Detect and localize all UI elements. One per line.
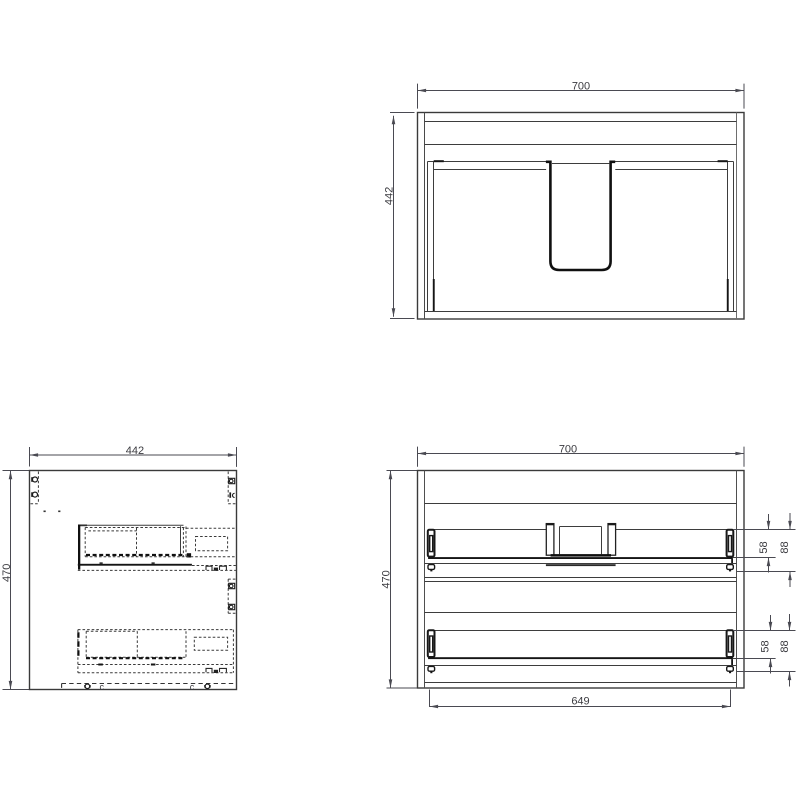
svg-text:649: 649 — [571, 696, 589, 708]
svg-text:c: c — [190, 682, 195, 692]
svg-text:442: 442 — [126, 445, 144, 457]
svg-text:700: 700 — [559, 443, 577, 455]
svg-text:58: 58 — [758, 541, 770, 553]
svg-text:470: 470 — [1, 564, 13, 582]
svg-text:88: 88 — [779, 640, 791, 652]
svg-text:442: 442 — [383, 187, 395, 205]
svg-text:88: 88 — [779, 541, 791, 553]
svg-text:58: 58 — [759, 640, 771, 652]
svg-text:700: 700 — [572, 80, 590, 92]
svg-text:c: c — [100, 682, 105, 692]
svg-text:470: 470 — [380, 570, 392, 588]
